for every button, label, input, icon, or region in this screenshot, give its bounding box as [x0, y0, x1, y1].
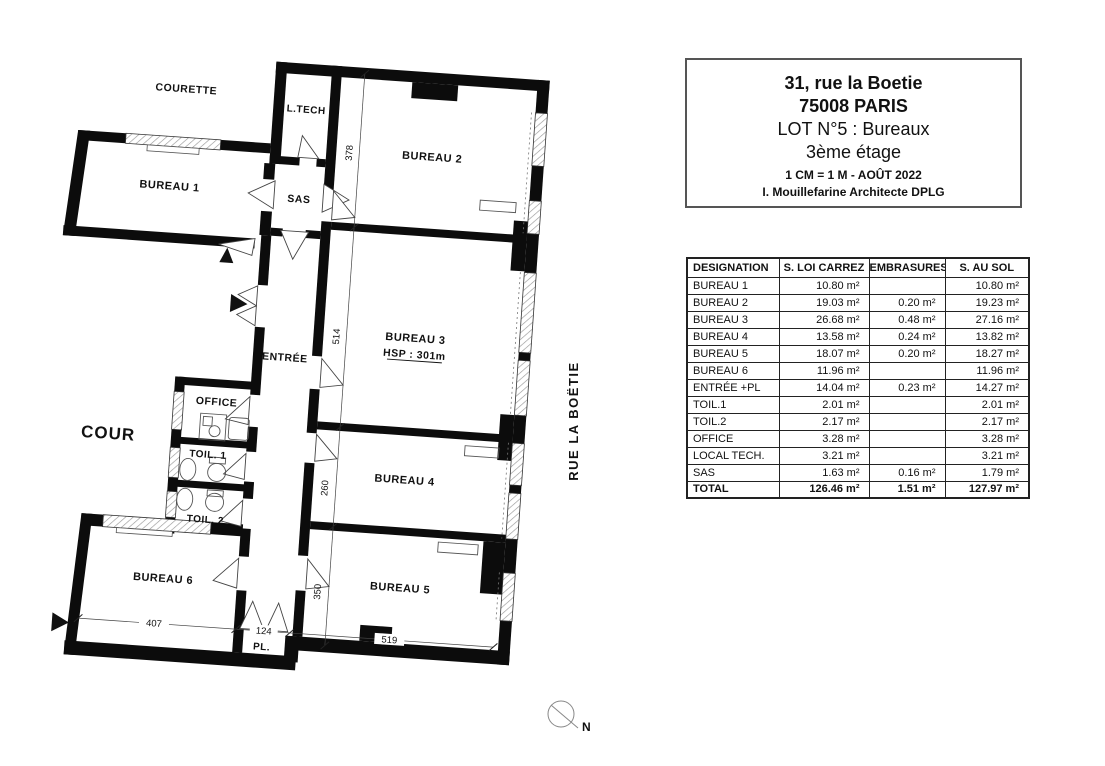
cell-designation: TOIL.2: [687, 413, 779, 430]
cell-designation: BUREAU 2: [687, 294, 779, 311]
cell-designation: LOCAL TECH.: [687, 447, 779, 464]
cell-carrez: 3.28 m²: [779, 430, 869, 447]
cell-designation: TOIL.1: [687, 396, 779, 413]
cell-sol: 18.27 m²: [945, 345, 1029, 362]
north-label: N: [582, 720, 591, 734]
dim-519: 519: [381, 634, 398, 646]
cell-designation: SAS: [687, 464, 779, 481]
label-bureau6: BUREAU 6: [133, 571, 194, 587]
table-row: ENTRÉE +PL14.04 m²0.23 m²14.27 m²: [687, 379, 1029, 396]
cell-embrasures: 0.20 m²: [869, 294, 945, 311]
radiators: [438, 199, 517, 556]
header-designation: DESIGNATION: [687, 258, 779, 277]
cell-carrez: 14.04 m²: [779, 379, 869, 396]
cell-sol: 2.17 m²: [945, 413, 1029, 430]
cell-sol: 1.79 m²: [945, 464, 1029, 481]
cell-carrez: 2.17 m²: [779, 413, 869, 430]
north-arrow-icon: N: [548, 701, 591, 734]
door-bureau2: [332, 191, 357, 222]
label-courette: COURETTE: [155, 81, 217, 97]
door-toil1: [223, 452, 246, 479]
cell-sol: 2.01 m²: [945, 396, 1029, 413]
cell-carrez: 26.68 m²: [779, 311, 869, 328]
cell-embrasures: [869, 396, 945, 413]
area-table: DESIGNATION S. LOI CARREZ EMBRASURES S. …: [686, 257, 1030, 499]
cell-embrasures: [869, 277, 945, 294]
door-sas-south: [279, 230, 309, 260]
cell-designation: BUREAU 3: [687, 311, 779, 328]
cell-designation: BUREAU 1: [687, 277, 779, 294]
label-sas: SAS: [287, 193, 311, 207]
cell-sol: 11.96 m²: [945, 362, 1029, 379]
cell-embrasures: 0.24 m²: [869, 328, 945, 345]
walls: [34, 48, 550, 686]
cell-designation: BUREAU 5: [687, 345, 779, 362]
table-row: LOCAL TECH.3.21 m²3.21 m²: [687, 447, 1029, 464]
label-bureau5: BUREAU 5: [370, 580, 431, 596]
label-ltech: L.TECH: [286, 103, 326, 117]
table-row: BUREAU 518.07 m²0.20 m²18.27 m²: [687, 345, 1029, 362]
cell-embrasures: [869, 430, 945, 447]
cell-embrasures: 1.51 m²: [869, 481, 945, 498]
label-bureau3: BUREAU 3: [385, 331, 446, 347]
table-row: BUREAU 110.80 m²10.80 m²: [687, 277, 1029, 294]
label-office: OFFICE: [195, 395, 237, 410]
label-bureau4: BUREAU 4: [374, 472, 435, 488]
window-bureau1: [125, 133, 221, 156]
dim-378: 378: [344, 145, 356, 162]
windows-office-toil: [165, 391, 184, 517]
cell-carrez: 13.58 m²: [779, 328, 869, 345]
cell-sol: 3.21 m²: [945, 447, 1029, 464]
cell-carrez: 126.46 m²: [779, 481, 869, 498]
arrow-right-edge-icon: [51, 612, 69, 632]
cell-sol: 13.82 m²: [945, 328, 1029, 345]
table-row: SAS1.63 m²0.16 m²1.79 m²: [687, 464, 1029, 481]
table-row: BUREAU 219.03 m²0.20 m²19.23 m²: [687, 294, 1029, 311]
door-sas-west: [247, 179, 275, 209]
cell-sol: 10.80 m²: [945, 277, 1029, 294]
title-scale-date: 1 CM = 1 M - AOÛT 2022: [687, 167, 1020, 184]
title-floor: 3ème étage: [687, 141, 1020, 164]
cell-sol: 3.28 m²: [945, 430, 1029, 447]
cell-embrasures: 0.23 m²: [869, 379, 945, 396]
door-ltech: [298, 135, 320, 158]
table-row: OFFICE3.28 m²3.28 m²: [687, 430, 1029, 447]
cell-designation: TOTAL: [687, 481, 779, 498]
dim-350: 350: [312, 584, 324, 601]
door-bureau6: [213, 557, 239, 589]
cell-sol: 19.23 m²: [945, 294, 1029, 311]
cell-designation: ENTRÉE +PL: [687, 379, 779, 396]
title-lot: LOT N°5 : Bureaux: [687, 118, 1020, 141]
title-city: 75008 PARIS: [687, 95, 1020, 118]
cell-sol: 127.97 m²: [945, 481, 1029, 498]
title-block: 31, rue la Boetie 75008 PARIS LOT N°5 : …: [685, 58, 1022, 208]
cell-embrasures: 0.48 m²: [869, 311, 945, 328]
door-bureau3: [320, 358, 345, 389]
table-row: TOIL.22.17 m²2.17 m²: [687, 413, 1029, 430]
cell-embrasures: [869, 413, 945, 430]
dim-124: 124: [255, 626, 272, 638]
cell-sol: 14.27 m²: [945, 379, 1029, 396]
cell-carrez: 11.96 m²: [779, 362, 869, 379]
header-carrez: S. LOI CARREZ: [779, 258, 869, 277]
label-bureau1: BUREAU 1: [139, 178, 200, 194]
cell-carrez: 1.63 m²: [779, 464, 869, 481]
cell-carrez: 3.21 m²: [779, 447, 869, 464]
cell-carrez: 19.03 m²: [779, 294, 869, 311]
table-row: BUREAU 326.68 m²0.48 m²27.16 m²: [687, 311, 1029, 328]
label-toil1: TOIL. 1: [189, 448, 227, 462]
cell-carrez: 18.07 m²: [779, 345, 869, 362]
title-address: 31, rue la Boetie: [687, 72, 1020, 95]
dim-407: 407: [146, 618, 163, 630]
table-total-row: TOTAL126.46 m²1.51 m²127.97 m²: [687, 481, 1029, 498]
dim-260: 260: [319, 480, 331, 497]
header-embrasures: EMBRASURES: [869, 258, 945, 277]
cell-carrez: 2.01 m²: [779, 396, 869, 413]
cell-embrasures: 0.20 m²: [869, 345, 945, 362]
cell-embrasures: 0.16 m²: [869, 464, 945, 481]
table-row: BUREAU 611.96 m²11.96 m²: [687, 362, 1029, 379]
title-architect: I. Mouillefarine Architecte DPLG: [687, 184, 1020, 201]
table-header-row: DESIGNATION S. LOI CARREZ EMBRASURES S. …: [687, 258, 1029, 277]
page: { "title_block": { "line1": "31, rue la …: [0, 0, 1105, 766]
plan-rotated-group: 378 514 260 350 407 124 519 COURETTE L.T…: [34, 48, 550, 686]
table-row: TOIL.12.01 m²2.01 m²: [687, 396, 1029, 413]
label-bureau2: BUREAU 2: [402, 150, 463, 166]
label-cour: COUR: [80, 422, 135, 445]
label-pl: PL.: [253, 641, 271, 653]
cell-embrasures: [869, 362, 945, 379]
table-row: BUREAU 413.58 m²0.24 m²13.82 m²: [687, 328, 1029, 345]
dim-514: 514: [331, 328, 343, 345]
header-sol: S. AU SOL: [945, 258, 1029, 277]
cell-sol: 27.16 m²: [945, 311, 1029, 328]
cell-designation: OFFICE: [687, 430, 779, 447]
toilet-fixtures-2: [176, 488, 224, 513]
label-entree: ENTRÉE: [262, 349, 308, 365]
arrow-up-icon: [219, 247, 234, 263]
street-label: RUE LA BOËTIE: [566, 361, 581, 480]
door-bureau4: [315, 434, 339, 462]
cell-designation: BUREAU 6: [687, 362, 779, 379]
cell-carrez: 10.80 m²: [779, 277, 869, 294]
cell-designation: BUREAU 4: [687, 328, 779, 345]
cell-embrasures: [869, 447, 945, 464]
